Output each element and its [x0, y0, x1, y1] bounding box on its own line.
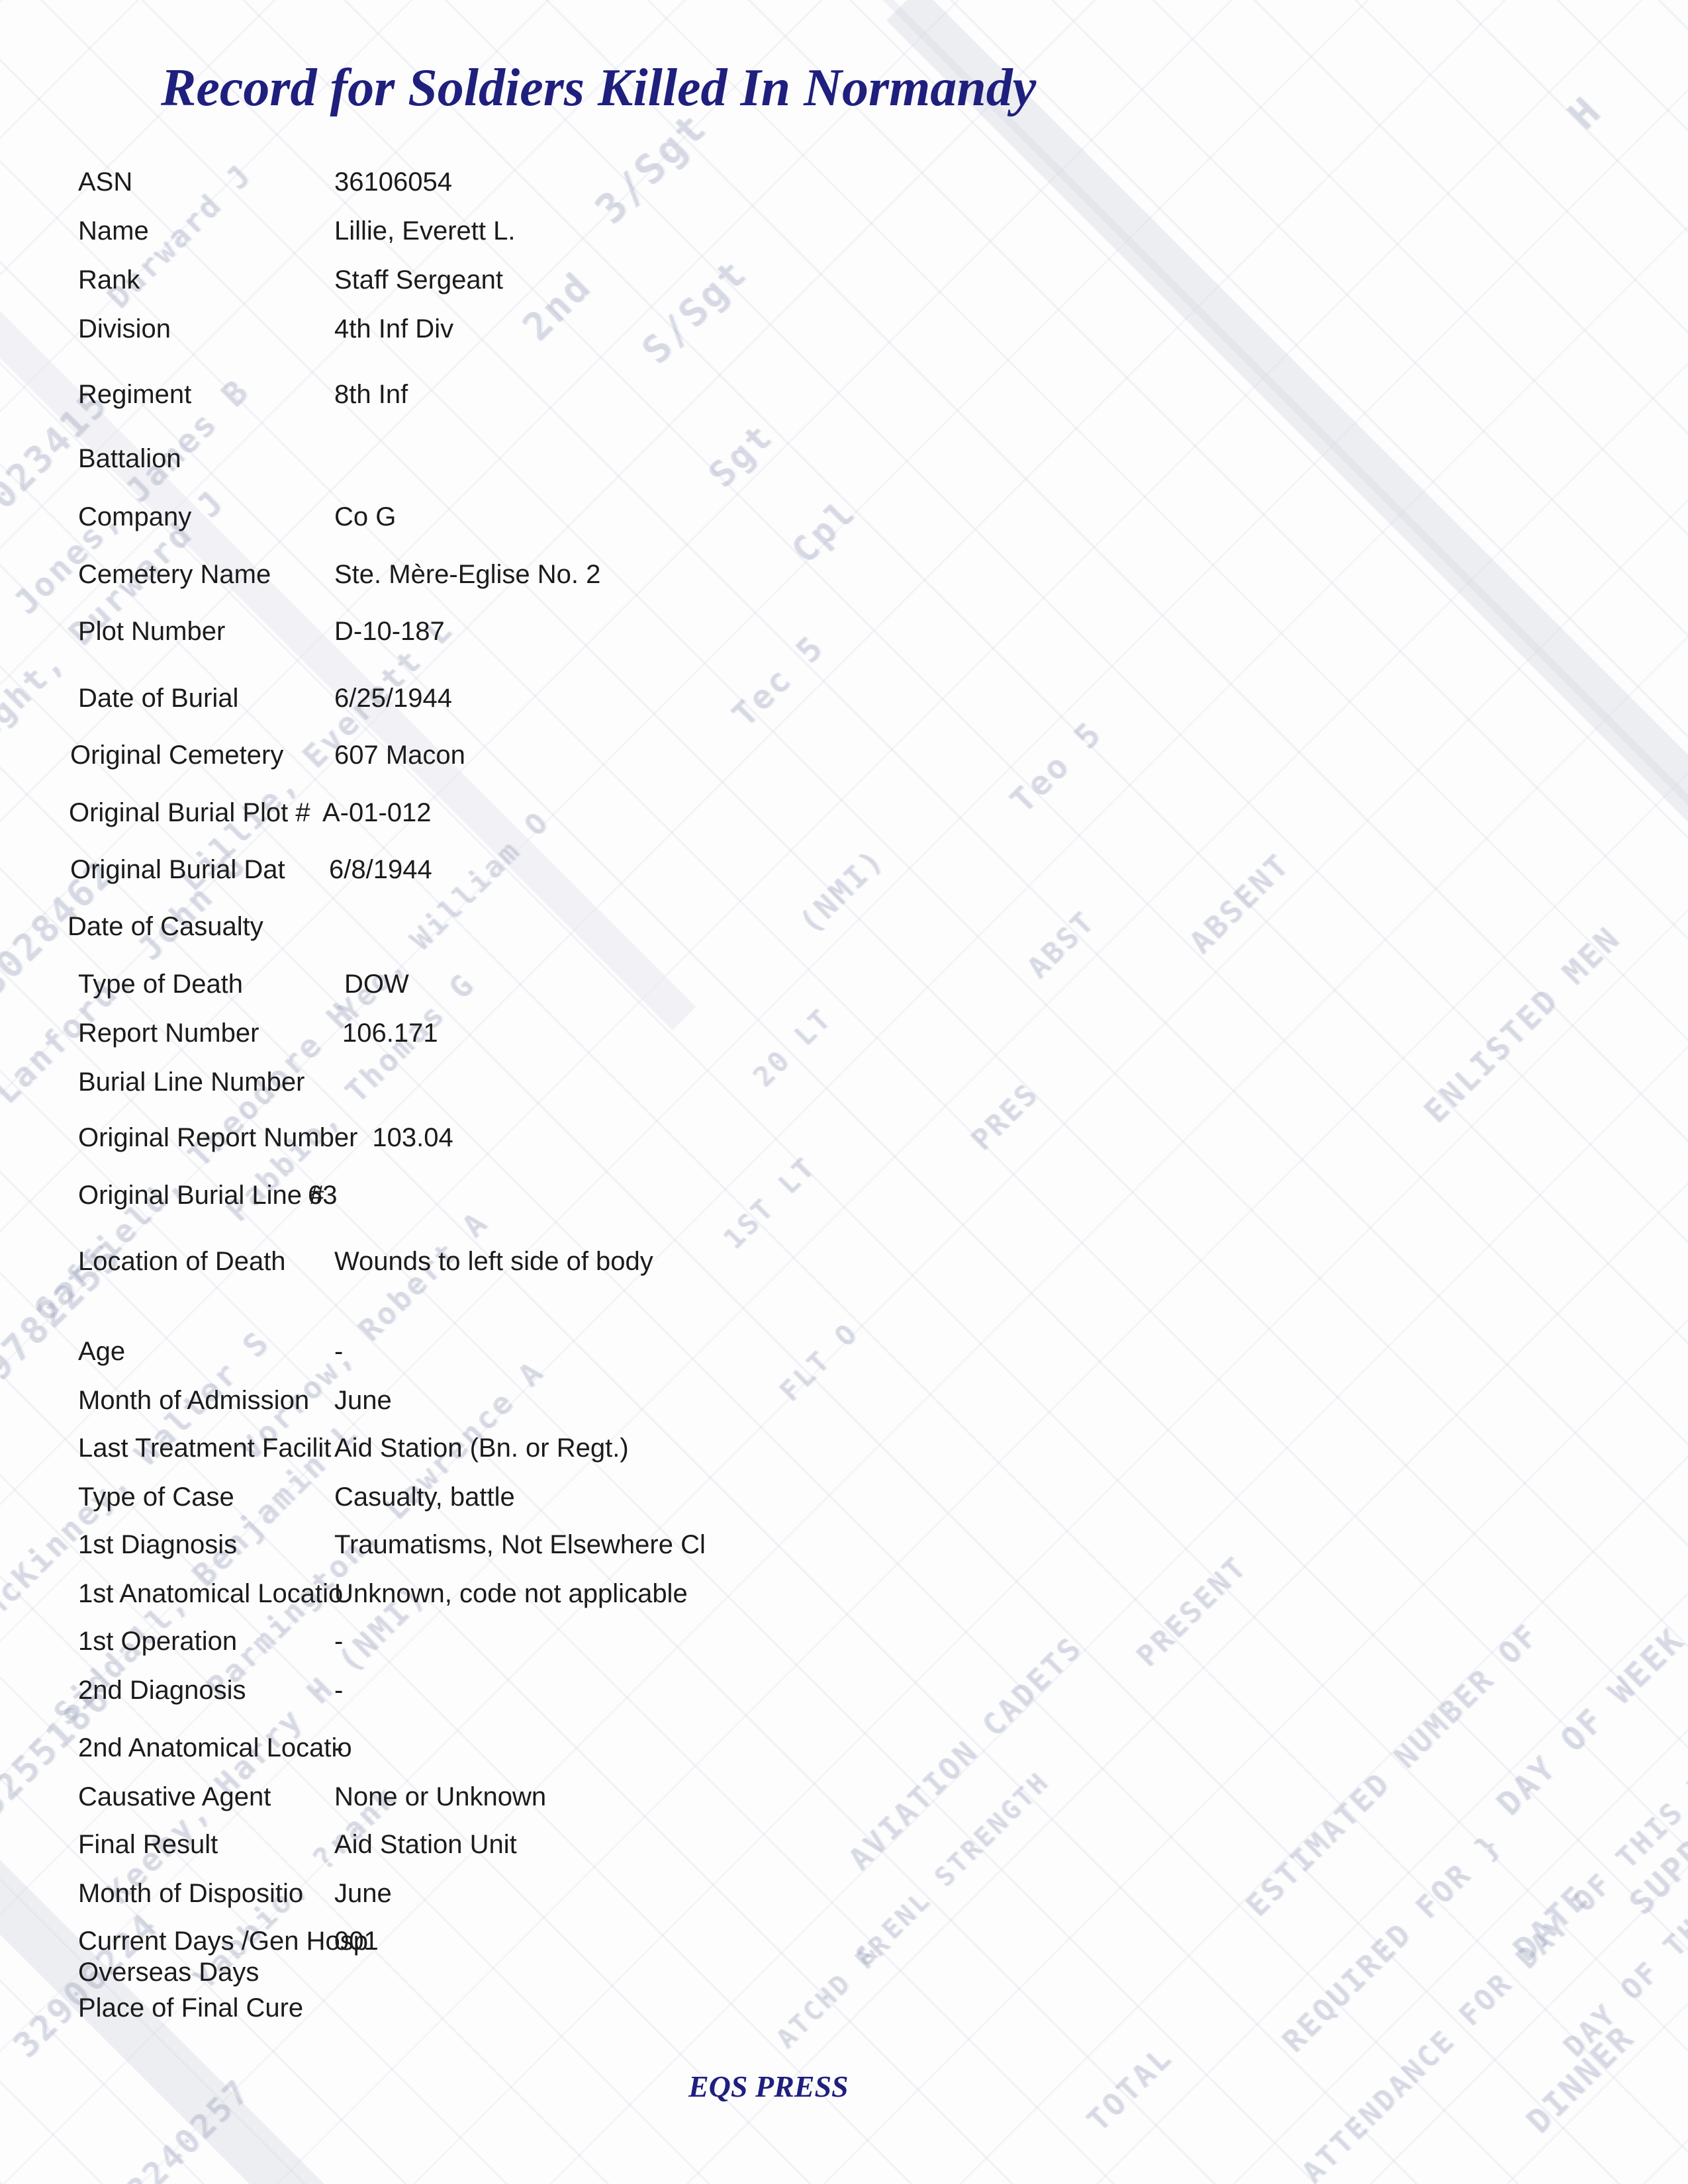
field-value: D-10-187 — [334, 617, 445, 647]
field-label: Plot Number — [78, 617, 225, 647]
field-label: Cemetery Name — [78, 560, 271, 590]
field-label: Rank — [78, 265, 140, 295]
field-label: Month of Admission — [78, 1386, 309, 1416]
field-label: 1st Operation — [78, 1627, 237, 1657]
field-label: Date of Casualty — [68, 912, 263, 942]
record-row: Location of DeathWounds to left side of … — [0, 1247, 1688, 1280]
record-row: Original Burial Dat6/8/1944 — [0, 855, 1688, 888]
field-value: - — [334, 1676, 343, 1706]
record-row: Cemetery NameSte. Mère-Eglise No. 2 — [0, 560, 1688, 593]
record-row: Original Cemetery607 Macon — [0, 741, 1688, 774]
record-row: ASN36106054 — [0, 167, 1688, 201]
field-value: Co G — [334, 502, 396, 532]
field-label: Original Burial Plot # — [69, 798, 310, 828]
record-row: Final ResultAid Station Unit — [0, 1830, 1688, 1863]
field-label: Original Cemetery — [70, 741, 283, 770]
field-label: Report Number — [78, 1019, 259, 1048]
field-label: Current Days /Gen Hosp — [78, 1927, 368, 1956]
field-label: 1st Anatomical Locatio — [78, 1579, 343, 1609]
field-label: Location of Death — [78, 1247, 286, 1277]
record-row: Causative AgentNone or Unknown — [0, 1782, 1688, 1815]
field-value: June — [334, 1879, 392, 1909]
record-row: Original Burial Plot #A-01-012 — [0, 798, 1688, 831]
field-value: Ste. Mère-Eglise No. 2 — [334, 560, 600, 590]
record-row: Type of CaseCasualty, battle — [0, 1482, 1688, 1516]
record-row: Month of DispositioJune — [0, 1879, 1688, 1912]
field-value: 607 Macon — [334, 741, 465, 770]
field-value: A-01-012 — [322, 798, 432, 828]
field-value: Casualty, battle — [334, 1482, 515, 1512]
field-label: Date of Burial — [78, 684, 238, 713]
record-row: Division4th Inf Div — [0, 314, 1688, 347]
field-value: - — [334, 1733, 343, 1763]
field-label: Burial Line Number — [78, 1068, 305, 1097]
record-row: Regiment8th Inf — [0, 380, 1688, 413]
field-value: 6/8/1944 — [329, 855, 432, 885]
field-value: 8th Inf — [334, 380, 408, 410]
field-label-line2: Overseas Days — [78, 1958, 259, 1987]
field-value: - — [334, 1337, 343, 1367]
record-row: Month of AdmissionJune — [0, 1386, 1688, 1419]
page-title: Record for Soldiers Killed In Normandy — [161, 58, 1036, 118]
field-label: Type of Case — [78, 1482, 234, 1512]
field-label: Original Burial Line # — [78, 1181, 324, 1210]
record-row: Last Treatment FacilitAid Station (Bn. o… — [0, 1433, 1688, 1467]
record-row: Type of DeathDOW — [0, 970, 1688, 1003]
field-label: 1st Diagnosis — [78, 1530, 237, 1560]
field-value: Traumatisms, Not Elsewhere Cl — [334, 1530, 706, 1560]
field-label: Last Treatment Facilit — [78, 1433, 331, 1463]
field-label: Name — [78, 216, 149, 246]
field-value: Staff Sergeant — [334, 265, 503, 295]
record-row: Report Number106.171 — [0, 1019, 1688, 1052]
field-value: Lillie, Everett L. — [334, 216, 515, 246]
press-footer: EQS PRESS — [688, 2069, 849, 2104]
field-label: Age — [78, 1337, 125, 1367]
field-value: 001 — [334, 1927, 379, 1956]
record-row: Date of Burial6/25/1944 — [0, 684, 1688, 717]
field-label: Month of Dispositio — [78, 1879, 303, 1909]
record-row: 1st Anatomical LocatioUnknown, code not … — [0, 1579, 1688, 1612]
field-label: Place of Final Cure — [78, 1993, 303, 2023]
field-label: Company — [78, 502, 191, 532]
field-value: Aid Station (Bn. or Regt.) — [334, 1433, 629, 1463]
field-label: Original Report Number — [78, 1123, 357, 1152]
field-value: Unknown, code not applicable — [334, 1579, 688, 1609]
record-row: 1st DiagnosisTraumatisms, Not Elsewhere … — [0, 1530, 1688, 1563]
field-value: 4th Inf Div — [334, 314, 453, 344]
record-row: 2nd Anatomical Locatio- — [0, 1733, 1688, 1766]
record-row: Battalion — [0, 444, 1688, 477]
record-row: Original Report Number103.04 — [0, 1123, 1688, 1156]
field-label: Final Result — [78, 1830, 218, 1860]
record-row: Place of Final Cure — [0, 1993, 1688, 2026]
field-value: Wounds to left side of body — [334, 1247, 653, 1277]
field-value: DOW — [344, 970, 409, 999]
document-page: 20023415 Wright, Durward J 13028462 Jone… — [0, 0, 1688, 2184]
record-row: CompanyCo G — [0, 502, 1688, 535]
field-value: - — [334, 1627, 343, 1657]
field-value: 106.171 — [342, 1019, 438, 1048]
field-value: June — [334, 1386, 392, 1416]
field-label: Type of Death — [78, 970, 243, 999]
record-row: Original Burial Line #63 — [0, 1181, 1688, 1214]
record-row: RankStaff Sergeant — [0, 265, 1688, 298]
field-value: 103.04 — [372, 1123, 453, 1152]
field-label: ASN — [78, 167, 132, 197]
record-row: Plot NumberD-10-187 — [0, 617, 1688, 650]
field-label: Regiment — [78, 380, 191, 410]
field-value: None or Unknown — [334, 1782, 546, 1812]
record-row: Age- — [0, 1337, 1688, 1370]
field-label: 2nd Diagnosis — [78, 1676, 246, 1706]
field-value: 6/25/1944 — [334, 684, 452, 713]
field-label: 2nd Anatomical Locatio — [78, 1733, 352, 1763]
field-value: 63 — [308, 1181, 338, 1210]
field-label: Causative Agent — [78, 1782, 271, 1812]
record-row: Current Days /Gen HospOverseas Days001 — [0, 1927, 1688, 1990]
record-row: Date of Casualty — [0, 912, 1688, 945]
field-value: Aid Station Unit — [334, 1830, 517, 1860]
field-label: Division — [78, 314, 171, 344]
record-row: Burial Line Number — [0, 1068, 1688, 1101]
record-row: 2nd Diagnosis- — [0, 1676, 1688, 1709]
field-label: Battalion — [78, 444, 181, 474]
field-value: 36106054 — [334, 167, 452, 197]
record-row: NameLillie, Everett L. — [0, 216, 1688, 250]
field-label: Original Burial Dat — [70, 855, 285, 885]
record-row: 1st Operation- — [0, 1627, 1688, 1660]
